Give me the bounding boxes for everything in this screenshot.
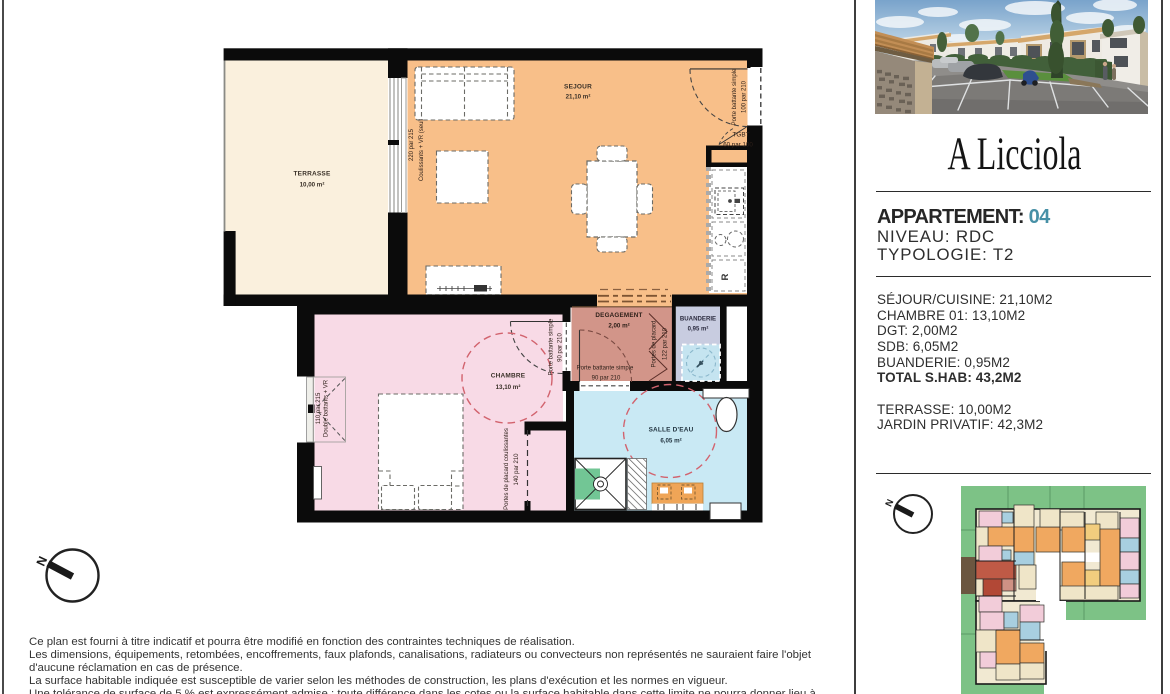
svg-text:Porte battante simple: Porte battante simple	[732, 68, 738, 125]
svg-text:220 par 215: 220 par 215	[409, 128, 415, 161]
svg-text:SEJOUR: SEJOUR	[564, 84, 592, 91]
svg-text:2,00 m²: 2,00 m²	[608, 323, 629, 330]
svg-text:140 par 210: 140 par 210	[514, 453, 520, 486]
svg-text:Porte battante simple: Porte battante simple	[549, 318, 555, 375]
svg-text:Double battants + VR: Double battants + VR	[324, 379, 330, 437]
svg-text:Coulissants + VR (seuil: Coulissants + VR (seuil	[419, 119, 425, 181]
svg-text:R: R	[720, 273, 731, 280]
svg-text:0,95 m²: 0,95 m²	[688, 326, 709, 333]
svg-text:N: N	[33, 554, 50, 568]
svg-text:13,10 m²: 13,10 m²	[496, 384, 521, 391]
svg-text:BUANDERIE: BUANDERIE	[680, 316, 716, 323]
svg-text:110 par 215: 110 par 215	[316, 392, 322, 424]
svg-text:90 par 210: 90 par 210	[558, 332, 564, 361]
svg-text:21,10 m²: 21,10 m²	[566, 94, 591, 101]
svg-text:Portes de placard coulissantes: Portes de placard coulissantes	[504, 428, 510, 510]
svg-text:122 par 210: 122 par 210	[663, 327, 669, 360]
svg-text:DEGAGEMENT: DEGAGEMENT	[595, 312, 642, 319]
svg-text:90 par 210: 90 par 210	[592, 376, 621, 382]
svg-text:100 par 210: 100 par 210	[742, 80, 748, 113]
svg-text:Portes de placard: Portes de placard	[652, 320, 658, 367]
svg-text:10,00 m²: 10,00 m²	[300, 182, 325, 189]
svg-text:N: N	[882, 497, 895, 508]
svg-text:SALLE D'EAU: SALLE D'EAU	[649, 427, 694, 434]
svg-text:Porte battante simple: Porte battante simple	[577, 366, 634, 372]
svg-text:60 par 100: 60 par 100	[723, 142, 753, 149]
svg-text:TERRASSE: TERRASSE	[294, 171, 331, 178]
svg-text:CHAMBRE: CHAMBRE	[491, 373, 526, 380]
svg-text:TGBT: TGBT	[732, 132, 749, 139]
svg-text:6,05 m²: 6,05 m²	[660, 438, 681, 445]
